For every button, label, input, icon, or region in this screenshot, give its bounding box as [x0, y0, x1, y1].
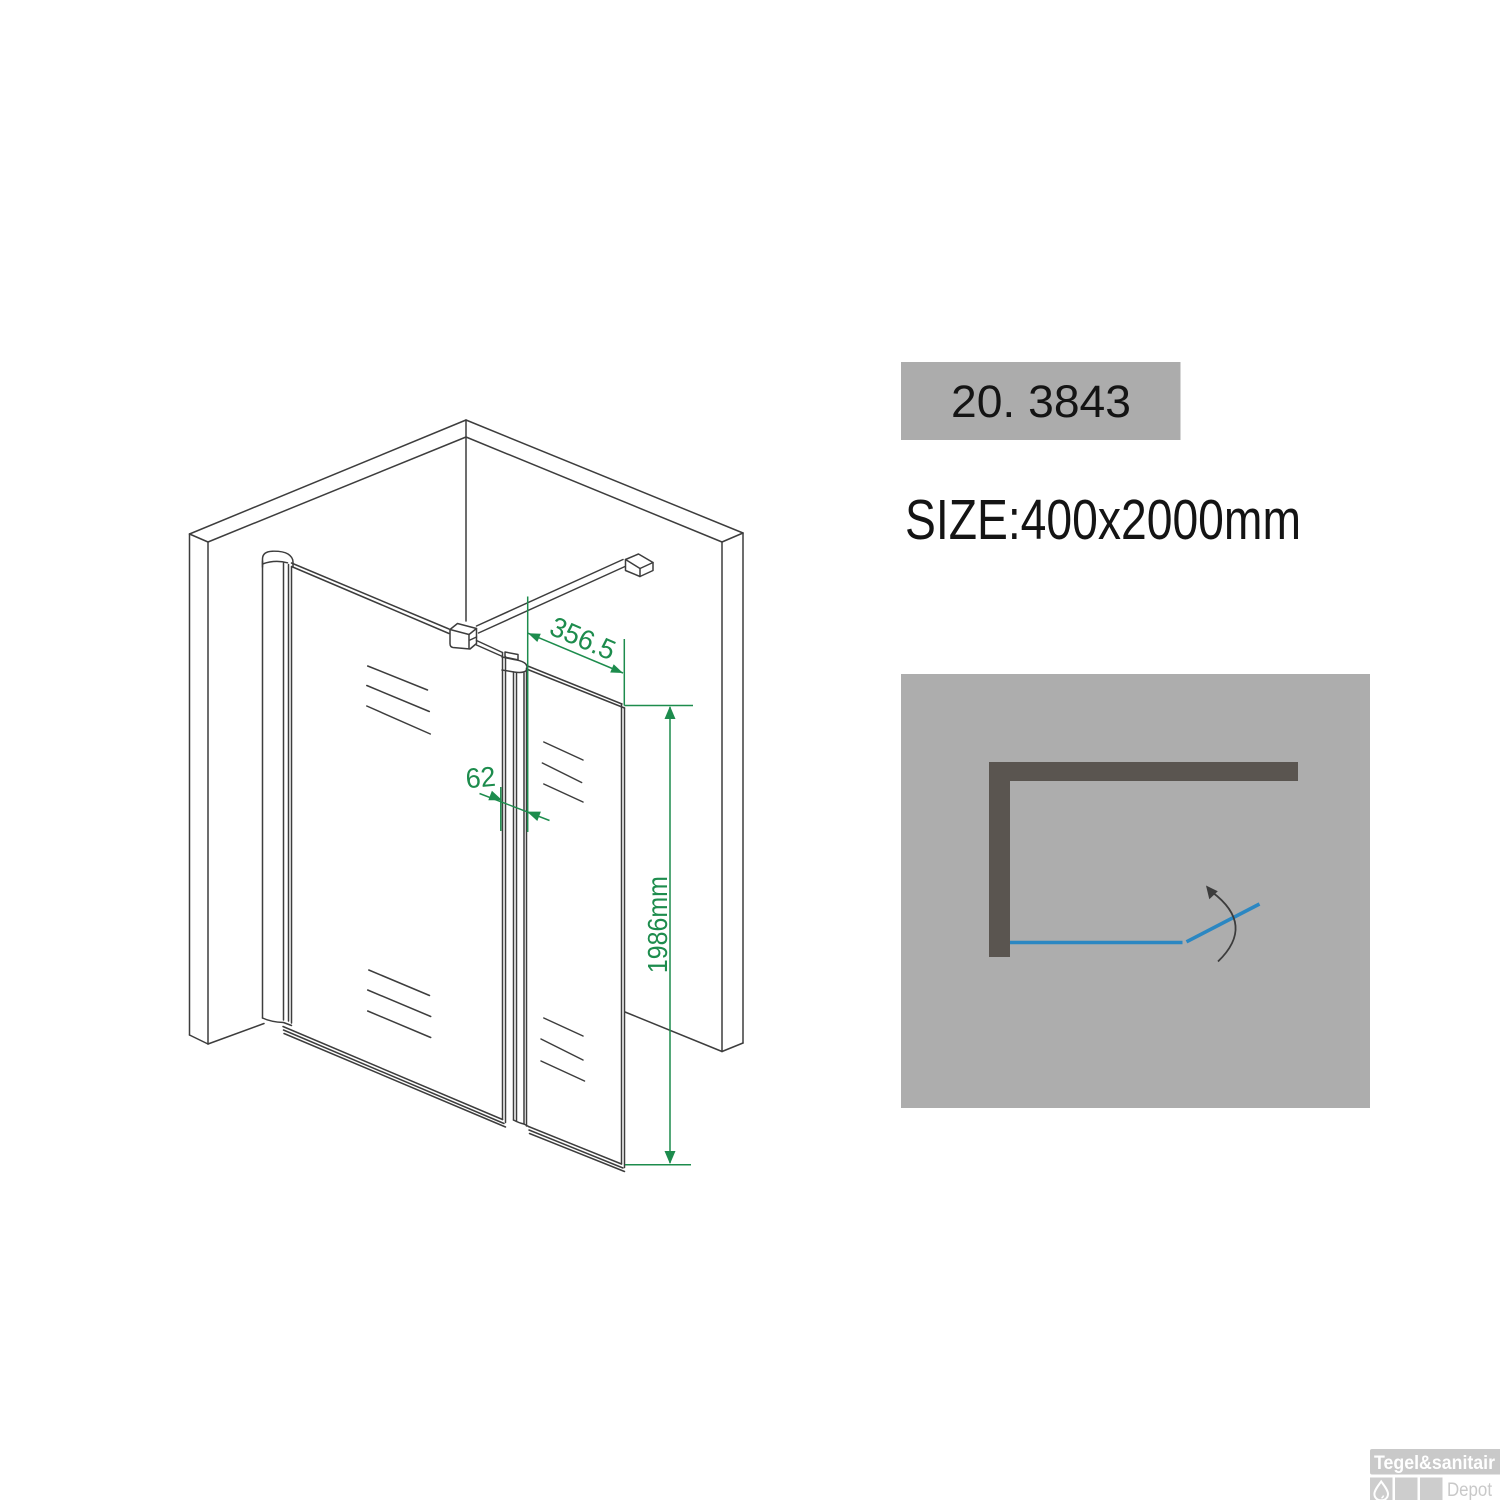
svg-text:62: 62	[464, 761, 497, 794]
svg-text:20. 3843: 20. 3843	[951, 376, 1131, 427]
svg-text:1986mm: 1986mm	[642, 876, 673, 973]
svg-text:SIZE:400x2000mm: SIZE:400x2000mm	[905, 488, 1301, 552]
svg-text:Depot: Depot	[1447, 1480, 1493, 1500]
svg-text:Tegel&sanitair: Tegel&sanitair	[1374, 1452, 1495, 1474]
